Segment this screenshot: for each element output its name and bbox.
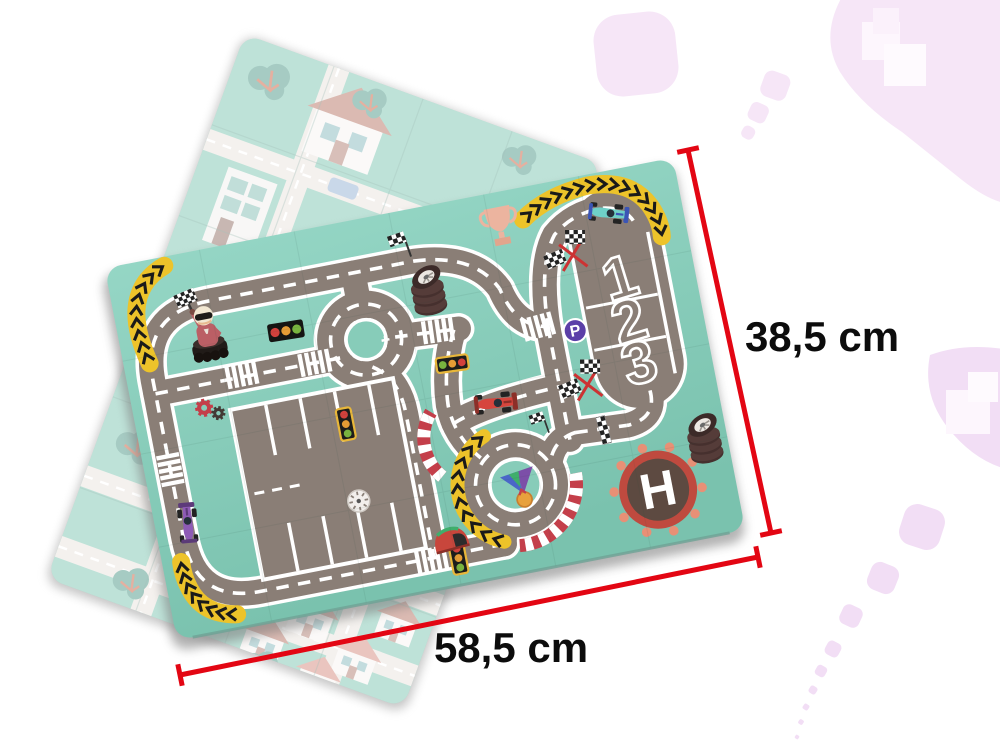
svg-text:38,5 cm: 38,5 cm	[745, 313, 899, 360]
svg-text:58,5 cm: 58,5 cm	[434, 624, 588, 671]
